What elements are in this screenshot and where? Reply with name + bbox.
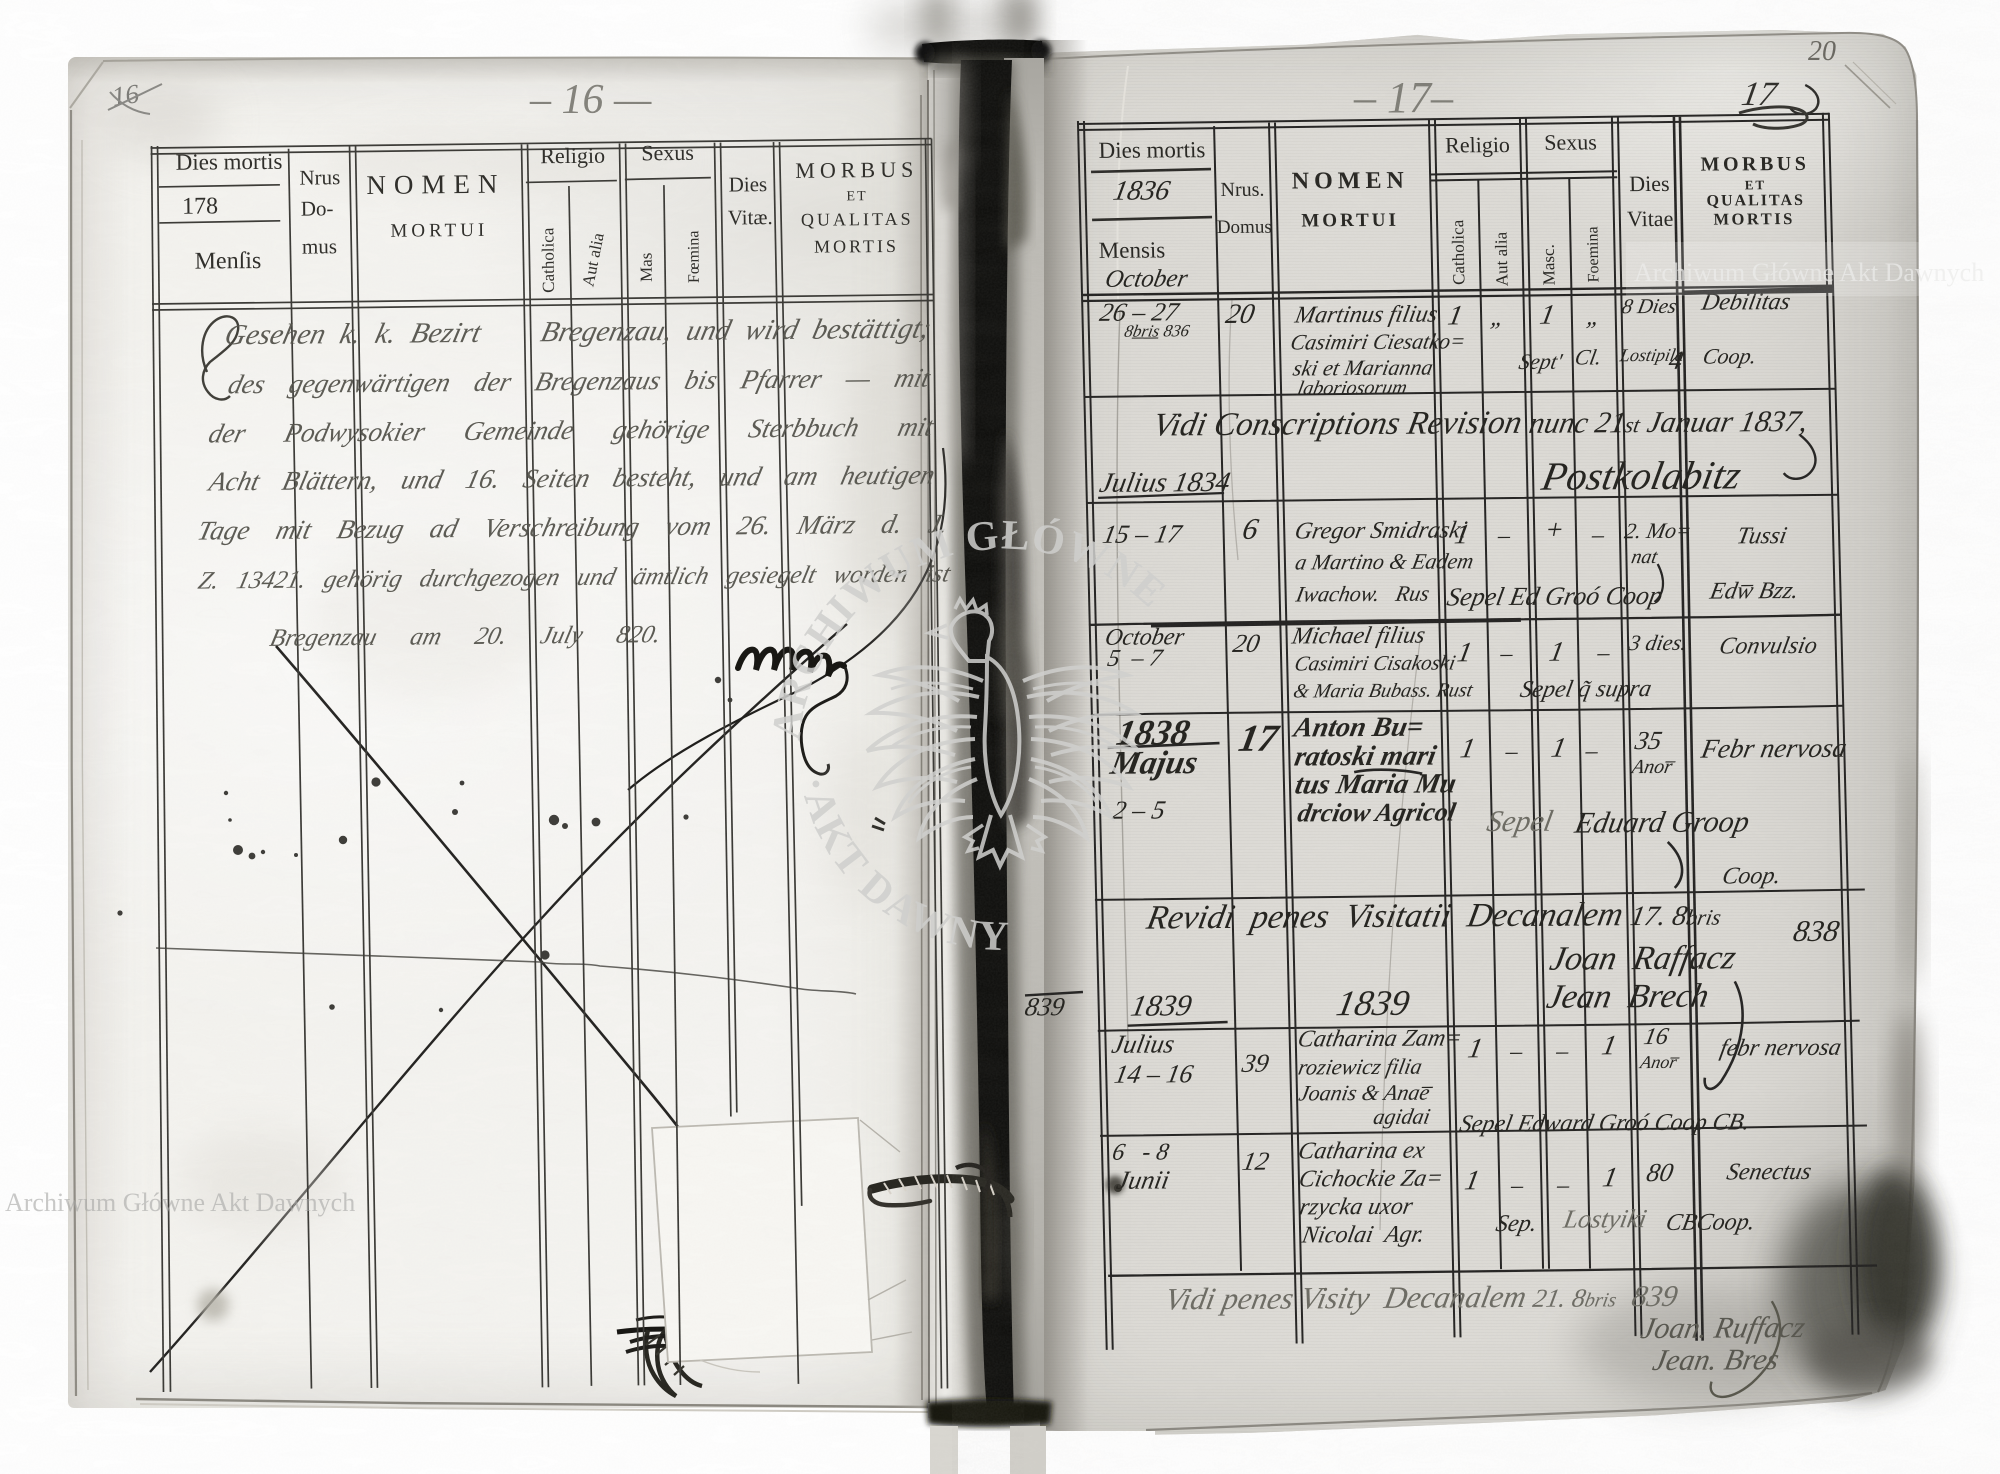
svg-text:ARCHIWUM GŁÓWNE: ARCHIWUM GŁÓWNE (764, 512, 1175, 742)
